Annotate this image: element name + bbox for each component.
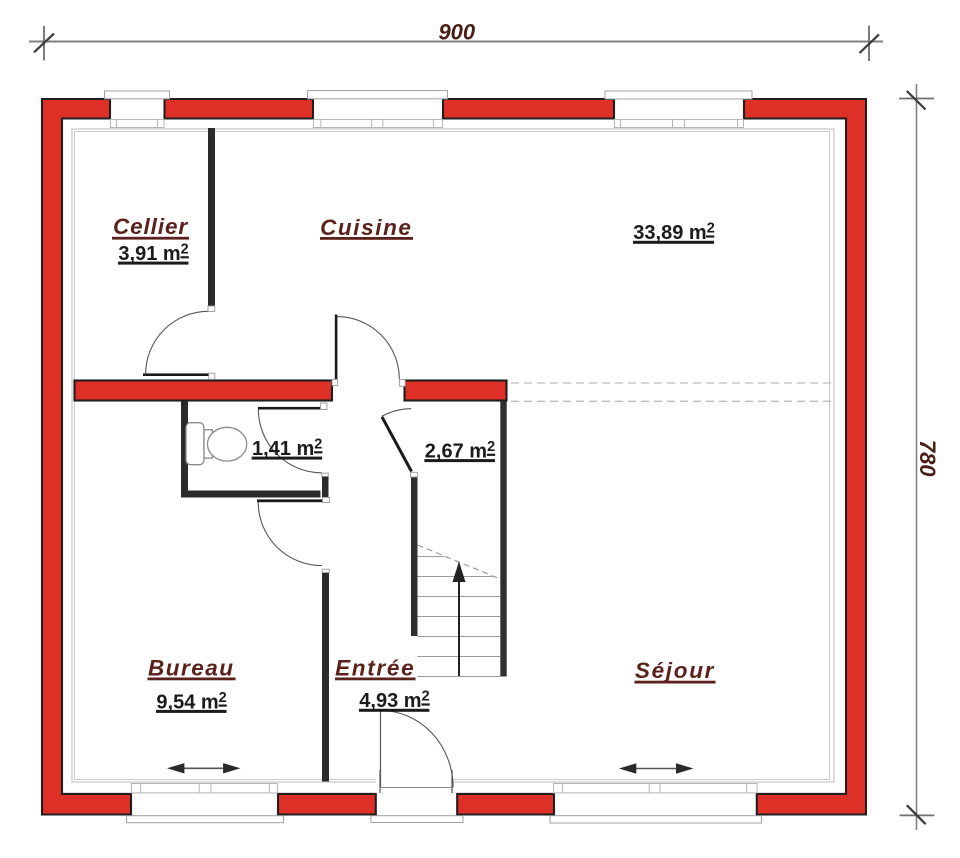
svg-text:Bureau: Bureau [148, 656, 235, 681]
svg-text:2,67 m2: 2,67 m2 [425, 439, 495, 463]
svg-text:Cuisine: Cuisine [320, 215, 412, 240]
svg-text:Séjour: Séjour [635, 658, 715, 683]
svg-text:33,89 m2: 33,89 m2 [633, 221, 714, 245]
svg-text:1,41 m2: 1,41 m2 [252, 437, 322, 461]
svg-text:780: 780 [915, 440, 940, 477]
svg-text:9,54 m2: 9,54 m2 [156, 690, 226, 714]
svg-text:900: 900 [438, 20, 475, 45]
svg-text:Entrée: Entrée [335, 656, 415, 681]
svg-text:3,91 m2: 3,91 m2 [118, 242, 188, 266]
svg-text:4,93 m2: 4,93 m2 [359, 689, 429, 713]
svg-text:Cellier: Cellier [113, 214, 188, 239]
